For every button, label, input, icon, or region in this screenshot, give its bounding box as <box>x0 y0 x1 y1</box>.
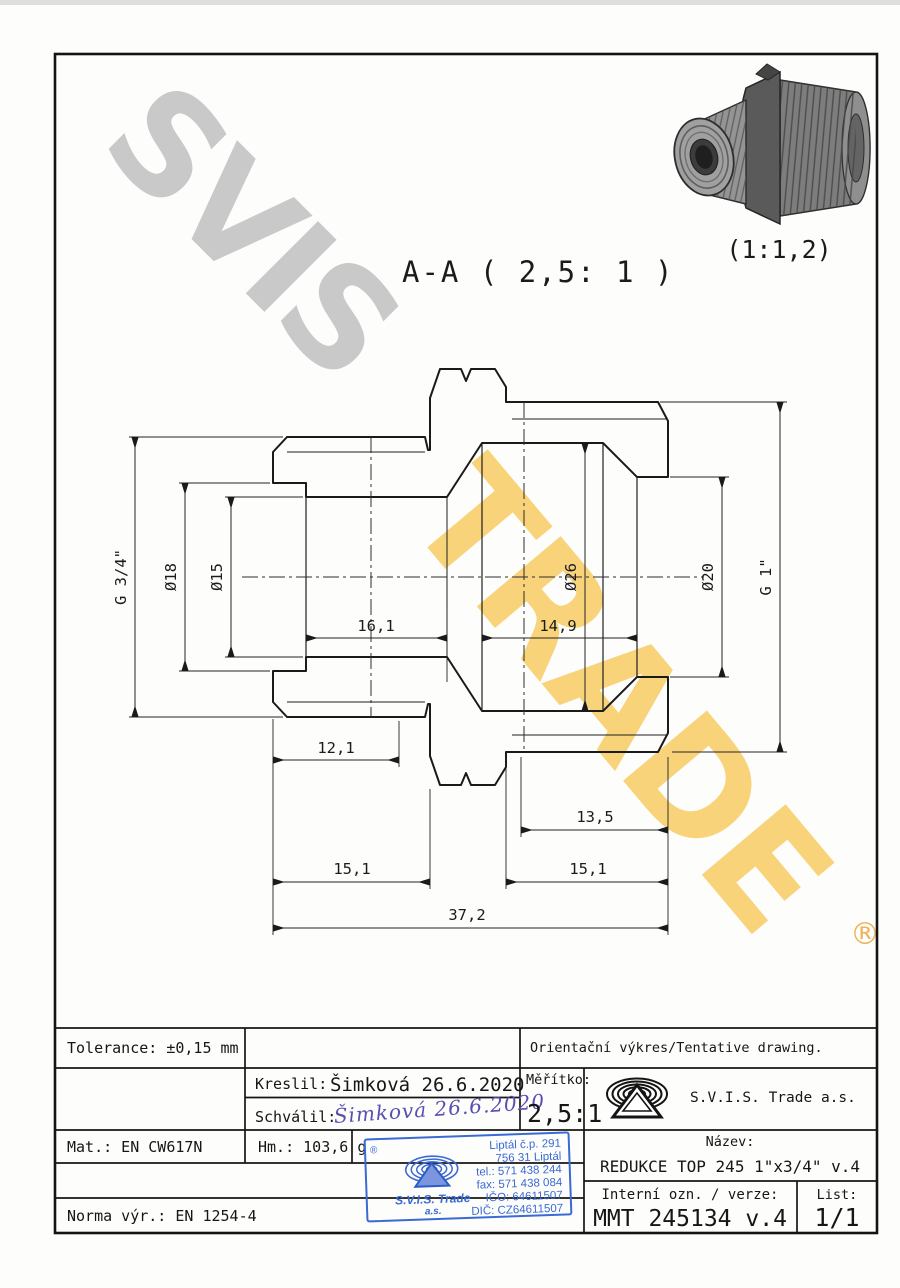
svis-logo-icon <box>607 1079 667 1118</box>
dim-label-121: 12,1 <box>317 739 354 757</box>
dim-label-151l: 15,1 <box>333 860 370 878</box>
stamp-ico: IČO: 64611507 <box>485 1189 563 1205</box>
stamp-company-line1: S.V.I.S. Trade <box>395 1191 471 1208</box>
tolerance-value: Tolerance: ±0,15 mm <box>67 1039 239 1057</box>
stamp-address2: 756 31 Liptál <box>495 1151 561 1165</box>
dim-label-d20: Ø20 <box>699 563 717 591</box>
company-stamp: ® S.V.I.S. Trade a.s. Liptál č.p. 291 75… <box>365 1132 572 1221</box>
internal-label: Interní ozn. / verze: <box>601 1187 778 1203</box>
name-label: Název: <box>706 1134 755 1150</box>
standard-value: Norma výr.: EN 1254-4 <box>67 1207 257 1225</box>
dim-label-149: 14,9 <box>539 617 576 635</box>
dim-label-g34: G 3/4" <box>112 549 130 605</box>
dim-label-161: 16,1 <box>357 617 394 635</box>
dim-label-d15: Ø15 <box>208 563 226 591</box>
drawing-sheet: SVIS TRADE ® <box>0 0 900 1288</box>
weight-value: Hm.: 103,6 g <box>258 1138 366 1156</box>
thumbnail-scale-label: (1:1,2) <box>726 235 831 264</box>
dim-label-d26: Ø26 <box>562 563 580 591</box>
material-value: Mat.: EN CW617N <box>67 1138 202 1156</box>
stamp-logo-icon <box>405 1155 458 1187</box>
dim-label-d18: Ø18 <box>162 563 180 591</box>
section-view <box>242 369 704 785</box>
approved-label: Schválil: <box>255 1108 336 1126</box>
stamp-registered-icon: ® <box>370 1145 378 1156</box>
company-name: S.V.I.S. Trade a.s. <box>690 1090 856 1106</box>
stamp-address1: Liptál č.p. 291 <box>489 1138 561 1152</box>
part-3d-preview <box>666 64 870 224</box>
dimension-labels: G 3/4" Ø18 Ø15 Ø26 Ø20 G 1" 16,1 14,9 12… <box>112 549 775 924</box>
scale-value: 2,5:1 <box>527 1099 602 1128</box>
orientation-note: Orientační výkres/Tentative drawing. <box>530 1040 823 1056</box>
dim-label-372: 37,2 <box>448 906 485 924</box>
centerlines <box>242 402 704 752</box>
drawing-canvas: G 3/4" Ø18 Ø15 Ø26 Ø20 G 1" 16,1 14,9 12… <box>0 0 900 1288</box>
sheet-value: 1/1 <box>814 1203 859 1232</box>
drawn-label: Kreslil: <box>255 1075 327 1093</box>
dim-label-151r: 15,1 <box>569 860 606 878</box>
name-value: REDUKCE TOP 245 1"x3/4" v.4 <box>600 1157 860 1176</box>
sheet-label: List: <box>817 1187 858 1203</box>
scale-label: Měřítko: <box>526 1072 591 1088</box>
internal-value: MMT 245134 v.4 <box>593 1206 787 1232</box>
stamp-company-line2: a.s. <box>425 1206 442 1218</box>
dimension-lines <box>129 402 787 935</box>
dim-label-g1: G 1" <box>757 558 775 595</box>
section-view-title: A-A ( 2,5: 1 ) <box>402 255 674 289</box>
dim-label-135: 13,5 <box>576 808 613 826</box>
